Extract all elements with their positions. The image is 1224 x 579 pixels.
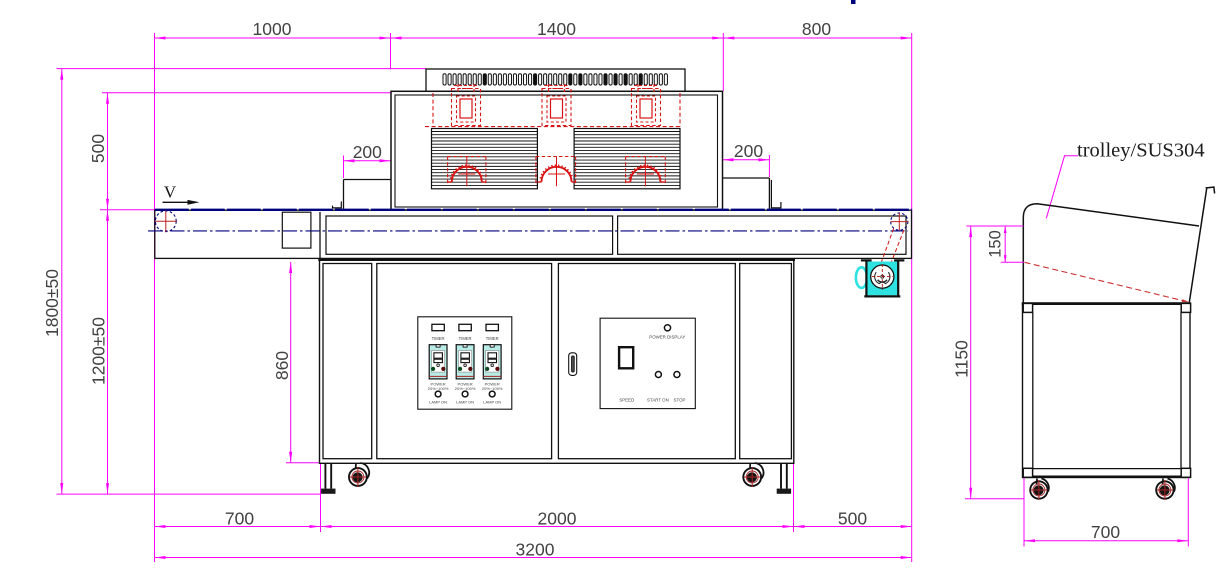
svg-text:500: 500 (838, 508, 867, 528)
svg-text:1800±50: 1800±50 (42, 269, 62, 337)
svg-text:1150: 1150 (951, 340, 971, 378)
svg-text:LAMP ON: LAMP ON (429, 399, 447, 404)
svg-text:200: 200 (734, 141, 763, 161)
svg-text:V: V (164, 183, 177, 202)
svg-text:2000: 2000 (538, 508, 577, 528)
svg-text:20%~100%: 20%~100% (428, 386, 449, 391)
svg-text:200: 200 (353, 142, 382, 162)
svg-text:TIMER: TIMER (459, 336, 472, 341)
svg-text:1000: 1000 (253, 19, 292, 39)
svg-text:700: 700 (225, 508, 254, 528)
svg-text:500: 500 (88, 134, 108, 163)
svg-text:trolley/SUS304: trolley/SUS304 (1077, 140, 1205, 162)
svg-text:LAMP ON: LAMP ON (456, 399, 474, 404)
svg-text:POWER DISPLAY: POWER DISPLAY (649, 334, 685, 339)
svg-text:SPEED: SPEED (619, 397, 634, 402)
svg-text:STOP: STOP (674, 397, 686, 402)
svg-text:1400: 1400 (537, 19, 576, 39)
svg-text:700: 700 (1091, 522, 1120, 542)
svg-text:START ON: START ON (647, 397, 669, 402)
svg-text:LAMP ON: LAMP ON (483, 399, 501, 404)
svg-text:800: 800 (802, 19, 831, 39)
svg-text:860: 860 (272, 351, 292, 380)
svg-text:TIMER: TIMER (432, 336, 445, 341)
svg-text:150: 150 (987, 230, 1005, 258)
svg-text:1200±50: 1200±50 (89, 317, 109, 385)
svg-text:20%~100%: 20%~100% (455, 386, 476, 391)
svg-text:TIMER: TIMER (486, 336, 499, 341)
svg-text:20%~100%: 20%~100% (482, 386, 503, 391)
svg-text:3200: 3200 (516, 539, 555, 559)
